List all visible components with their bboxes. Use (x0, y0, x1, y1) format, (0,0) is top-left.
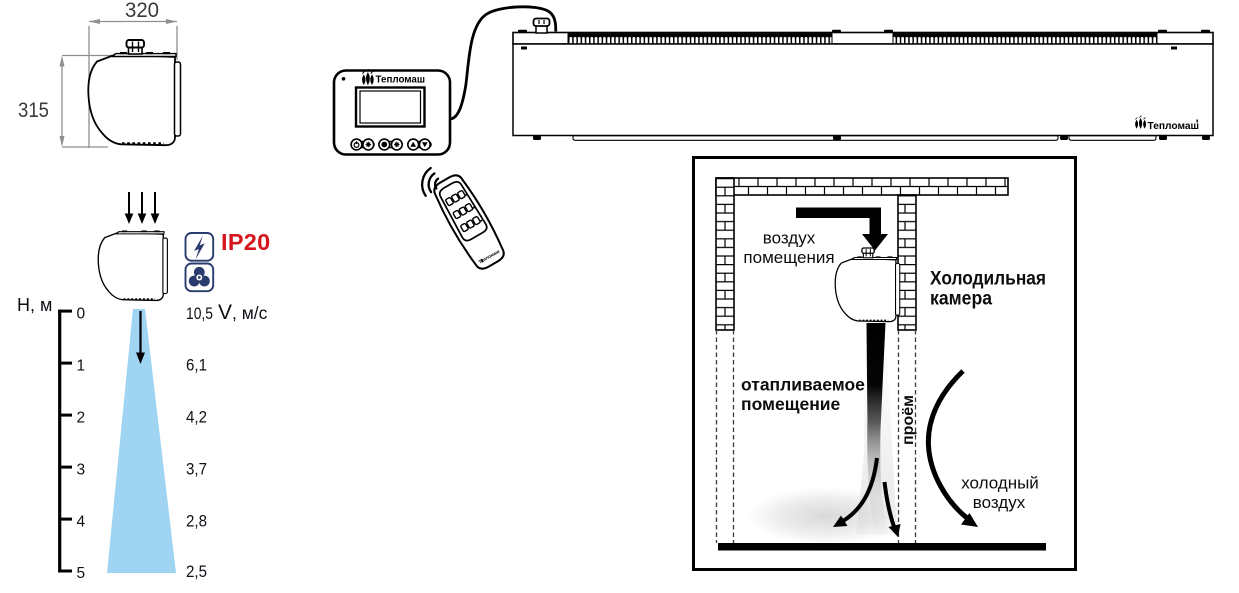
svg-text:помещение: помещение (741, 394, 841, 414)
svg-text:Тепломаш: Тепломаш (376, 75, 426, 86)
svg-text:0: 0 (77, 305, 86, 322)
svg-text:4,2: 4,2 (186, 408, 207, 427)
svg-text:6,1: 6,1 (186, 356, 207, 375)
svg-text:помещения: помещения (743, 248, 834, 267)
svg-text:воздух: воздух (973, 493, 1026, 512)
svg-text:2,8: 2,8 (186, 512, 207, 531)
svg-text:315: 315 (18, 99, 49, 122)
svg-text:5: 5 (77, 565, 86, 582)
svg-text:4: 4 (77, 513, 86, 530)
svg-text:1: 1 (77, 357, 86, 374)
svg-text:3,7: 3,7 (186, 460, 207, 479)
svg-text:отапливаемое: отапливаемое (741, 375, 865, 395)
svg-text:10,5: 10,5 (186, 304, 213, 323)
svg-text:холодный: холодный (961, 474, 1039, 493)
svg-text:Тепломаш: Тепломаш (1148, 121, 1200, 132)
svg-text:320: 320 (125, 0, 159, 22)
svg-text:IP20: IP20 (221, 229, 271, 255)
svg-text:Холодильная: Холодильная (930, 269, 1046, 290)
svg-text:3: 3 (77, 461, 86, 478)
svg-text:V, м/с: V, м/с (218, 301, 268, 324)
svg-text:H, м: H, м (17, 295, 52, 315)
svg-text:2,5: 2,5 (186, 562, 207, 581)
svg-text:2: 2 (77, 409, 86, 426)
svg-text:воздух: воздух (763, 229, 816, 248)
svg-text:камера: камера (930, 289, 992, 310)
svg-text:проём: проём (900, 395, 917, 445)
